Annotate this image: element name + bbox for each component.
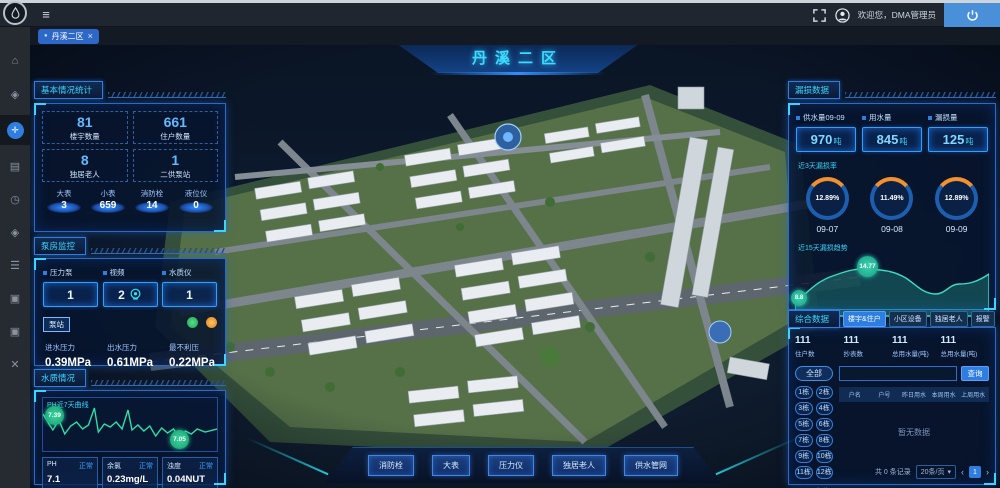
data-panel-title: 综合数据 <box>788 310 840 328</box>
pump-item-label: 水质仪 <box>169 267 192 278</box>
stat-pump-station: 1 二供泵站 <box>133 149 219 182</box>
dashboard-icon: ✛ <box>7 122 24 139</box>
sidebar-nav: ⌂ ◈ ✛ ▤ ◷ ◈ ☰ ▣ ▣ ✕ <box>0 27 30 488</box>
layer-button-pressure-meter[interactable]: 压力仪 <box>488 455 534 476</box>
dp-stat-label: 住户数 <box>795 348 844 358</box>
sidebar-item-dashboard[interactable]: ✛ <box>0 115 30 145</box>
quality-card-label: 余氯 <box>107 461 121 471</box>
leak-stat-unit: 吨 <box>833 136 841 147</box>
ph-end-bubble: 7.05 <box>170 430 189 449</box>
trend-peak-bubble: 14.77 <box>857 256 878 277</box>
tools-icon: ✕ <box>10 358 19 371</box>
water-drop-logo-icon <box>9 7 22 20</box>
sidebar-item-screen[interactable]: ▣ <box>0 319 30 343</box>
quality-card-turbidity: 浊度正常 0.04NUT <box>162 457 218 488</box>
leak-stat-label: 供水量09-09 <box>803 112 845 123</box>
bullet-decor <box>796 116 800 120</box>
leak-trend-chart: 8.8 14.77 <box>795 256 989 318</box>
sidebar-item-tools[interactable]: ✕ <box>0 352 30 376</box>
metric-worst-pressure: 最不利压 0.22MPa <box>169 342 215 369</box>
dp-stat-label: 总用水量(吨) <box>892 348 941 358</box>
building-button-1[interactable]: 1栋 <box>795 386 813 399</box>
dp-stat-households: 111 住户数 <box>795 335 844 358</box>
leak-trend-title: 近15天漏损趋势 <box>789 234 995 253</box>
building-button-2[interactable]: 2栋 <box>816 386 834 399</box>
pump-item-pressure-pump: 压力泵 1 <box>43 267 98 307</box>
tab-buildings-households[interactable]: 楼宇&住户 <box>843 311 886 327</box>
metric-outlet-pressure: 出水压力 0.61MPa <box>107 342 153 369</box>
leak-donut-title: 近3天漏损率 <box>789 152 995 171</box>
metric-value: 0.22MPa <box>169 357 215 369</box>
donut-percent: 12.89% <box>945 195 969 202</box>
quality-panel: PH近7天曲线 7.39 7.05 PH正常 7.1 余氯正常 0.23mg/L… <box>34 390 226 485</box>
leak-stat-value: 125 <box>943 128 965 151</box>
prev-page-button[interactable]: ‹ <box>961 467 964 477</box>
quality-card-label: PH <box>47 461 57 471</box>
donut-percent: 11.49% <box>880 195 903 202</box>
pump-panel: 压力泵 1 视频 2 水质仪 1 泵站 <box>34 258 226 366</box>
leak-stat-unit: 吨 <box>965 136 973 147</box>
quality-card-value: 7.1 <box>47 474 93 485</box>
home-icon: ⌂ <box>12 55 19 67</box>
chart-icon: ▤ <box>10 160 20 173</box>
leak-panel-header: 漏损数据 <box>788 84 996 99</box>
pedestal-hydrant: 消防栓 14 <box>132 188 172 211</box>
station-tag[interactable]: 泵站 <box>43 317 70 332</box>
list-icon: ☰ <box>10 259 20 272</box>
pump-item-value: 1 <box>67 288 74 302</box>
layer-button-big-meter[interactable]: 大表 <box>432 455 470 476</box>
header-hatch-decor <box>845 92 996 98</box>
hamburger-menu-icon[interactable]: ≡ <box>38 7 54 23</box>
pump-item-video: 视频 2 <box>103 267 158 307</box>
tab-alarm[interactable]: 报警 <box>971 311 995 327</box>
metric-label: 最不利压 <box>169 342 215 353</box>
page-size-select[interactable]: 20条/页 ▾ <box>916 465 956 479</box>
pump-panel-header: 泵房监控 <box>34 240 226 255</box>
header-hatch-decor <box>108 92 226 98</box>
banner-glow-line <box>430 72 606 75</box>
building-button-6[interactable]: 6栋 <box>816 418 834 431</box>
leak-stat-loss: 漏损量 125吨 <box>928 112 988 152</box>
leak-stat-value: 970 <box>811 128 833 151</box>
app-logo <box>3 1 27 25</box>
pump-item-label: 压力泵 <box>50 267 73 278</box>
pedestal-small-meter: 小表 659 <box>88 188 128 211</box>
sidebar-item-water[interactable]: ◈ <box>0 82 30 106</box>
tab-community-devices[interactable]: 小区设备 <box>889 311 927 327</box>
leak-donut-2: 11.49% 09-08 <box>870 177 913 234</box>
pedestal-label: 大表 <box>44 188 84 199</box>
quality-panel-title: 水质情况 <box>34 369 86 387</box>
power-icon <box>966 9 979 22</box>
building-button-4[interactable]: 4栋 <box>816 402 834 415</box>
bullet-decor <box>162 271 166 275</box>
avatar-icon[interactable] <box>835 8 850 23</box>
pump-item-label: 视频 <box>110 267 125 278</box>
tab-bar: ● 丹溪二区 × <box>30 27 1000 45</box>
donut-date: 09-07 <box>806 224 849 234</box>
leak-donut-3: 12.89% 09-09 <box>935 177 978 234</box>
pedestal-label: 液位仪 <box>176 188 216 199</box>
bottom-toolbar: 消防栓 大表 压力仪 独居老人 供水管网 <box>325 447 721 483</box>
col-household-id: 户号 <box>871 390 899 399</box>
building-button-3[interactable]: 3栋 <box>795 402 813 415</box>
ph-line-chart: PH近7天曲线 7.39 7.05 <box>42 397 218 452</box>
col-this-week-usage: 本周用水 <box>930 390 958 399</box>
topbar: ≡ 欢迎您，DMA管理员 <box>0 3 1000 27</box>
filter-all-button[interactable]: 全部 <box>795 366 833 381</box>
pedestal-value: 0 <box>176 200 216 211</box>
quality-card-status: 正常 <box>199 461 213 471</box>
online-status-icon[interactable] <box>187 317 198 328</box>
sidebar-item-home[interactable]: ⌂ <box>0 49 30 73</box>
quality-card-value: 0.23mg/L <box>107 474 153 485</box>
building-button-5[interactable]: 5栋 <box>795 418 813 431</box>
metric-label: 出水压力 <box>107 342 153 353</box>
pedestal-label: 小表 <box>88 188 128 199</box>
pagination-bar: 共 0 条记录 20条/页 ▾ ‹ 1 › <box>789 462 995 484</box>
quality-card-status: 正常 <box>79 461 93 471</box>
welcome-text: 欢迎您，DMA管理员 <box>858 9 936 21</box>
leak-panel-title: 漏损数据 <box>788 81 840 99</box>
tab-elderly[interactable]: 独居老人 <box>930 311 968 327</box>
stat-elderly: 8 独居老人 <box>42 149 128 182</box>
sidebar-item-quality[interactable]: ◈ <box>0 220 30 244</box>
donut-percent: 12.89% <box>815 195 839 202</box>
leak-stat-label: 用水量 <box>869 112 892 123</box>
bullet-decor <box>862 116 866 120</box>
leak-panel: 供水量09-09 970吨 用水量 845吨 漏损量 125吨 近3天漏损率 1… <box>788 103 996 310</box>
district-title: 丹溪二区 <box>472 47 564 68</box>
metric-value: 0.61MPa <box>107 357 153 369</box>
trend-start-bubble: 8.8 <box>791 290 807 306</box>
quality-card-chlorine: 余氯正常 0.23mg/L <box>102 457 158 488</box>
stat-label: 楼宇数量 <box>70 131 100 142</box>
warning-status-icon[interactable] <box>206 317 217 328</box>
donut-date: 09-09 <box>935 224 978 234</box>
clock-icon: ◷ <box>10 193 20 206</box>
stat-value: 8 <box>81 152 89 168</box>
table-empty-state: 暂无数据 <box>839 402 989 462</box>
pump-item-quality-meter: 水质仪 1 <box>162 267 217 307</box>
pedestal-value: 14 <box>132 200 172 211</box>
quality-card-ph: PH正常 7.1 <box>42 457 98 488</box>
dp-stat-label: 总用水量(吨) <box>941 348 990 358</box>
leak-stat-usage: 用水量 845吨 <box>862 112 922 152</box>
dp-stat-total-usage-2: 111 总用水量(吨) <box>941 335 990 358</box>
pedestal-big-meter: 大表 3 <box>44 188 84 211</box>
pedestal-level-meter: 液位仪 0 <box>176 188 216 211</box>
bullet-decor <box>43 271 47 275</box>
bullet-decor <box>928 116 932 120</box>
water-quality-icon: ◈ <box>11 226 19 239</box>
stat-value: 81 <box>77 114 93 130</box>
donut-date: 09-08 <box>870 224 913 234</box>
dp-stat-value: 111 <box>795 335 844 346</box>
metric-value: 0.39MPa <box>45 357 91 369</box>
header-hatch-decor <box>91 380 226 386</box>
ph-start-bubble: 7.39 <box>45 406 64 425</box>
map-3d-view[interactable]: 丹溪二区 基本情况统计 81 楼宇数量 661 住户数量 8 独居老人 1 二供… <box>30 27 1000 488</box>
fullscreen-icon[interactable] <box>812 8 827 23</box>
metric-inlet-pressure: 进水压力 0.39MPa <box>45 342 91 369</box>
pump-item-value: 1 <box>186 288 193 302</box>
quality-card-value: 0.04NUT <box>167 474 213 485</box>
chevron-down-icon: ▾ <box>947 468 951 476</box>
col-household-name: 户名 <box>841 390 869 399</box>
col-yesterday-usage: 昨日用水 <box>900 390 928 399</box>
pedestal-label: 消防栓 <box>132 188 172 199</box>
dp-stat-value: 111 <box>892 335 941 346</box>
tab-close-icon[interactable]: × <box>88 31 93 41</box>
leak-stat-supply: 供水量09-09 970吨 <box>796 112 856 152</box>
dp-stat-meter-readings: 111 抄表数 <box>844 335 893 358</box>
quality-card-status: 正常 <box>139 461 153 471</box>
search-input[interactable] <box>839 366 957 381</box>
tab-active-dot: ● <box>44 33 48 39</box>
stats-panel: 81 楼宇数量 661 住户数量 8 独居老人 1 二供泵站 大表 3 <box>34 103 226 232</box>
stat-households: 661 住户数量 <box>133 111 219 144</box>
pedestal-value: 3 <box>44 200 84 211</box>
sidebar-item-chart[interactable]: ▤ <box>0 154 30 178</box>
layer-button-elderly[interactable]: 独居老人 <box>552 455 606 476</box>
logout-power-button[interactable] <box>944 3 1000 27</box>
leak-donut-1: 12.89% 09-07 <box>806 177 849 234</box>
leak-stat-value: 845 <box>877 128 899 151</box>
sidebar-item-list[interactable]: ☰ <box>0 253 30 277</box>
camera-icon[interactable] <box>129 288 142 301</box>
dp-stat-label: 抄表数 <box>844 348 893 358</box>
window-scrollbar-strip <box>0 0 1000 3</box>
pump-item-value: 2 <box>118 288 125 302</box>
building-button-8[interactable]: 8栋 <box>816 434 834 447</box>
layer-button-water-network[interactable]: 供水管网 <box>624 455 678 476</box>
layer-button-hydrant[interactable]: 消防栓 <box>368 455 414 476</box>
monitor-icon: ▣ <box>10 292 20 305</box>
tab-label: 丹溪二区 <box>52 31 84 42</box>
dp-stat-value: 111 <box>941 335 990 346</box>
col-last-week-usage: 上周用水 <box>959 390 987 399</box>
water-drop-icon: ◈ <box>11 88 19 101</box>
metric-label: 进水压力 <box>45 342 91 353</box>
leak-stat-unit: 吨 <box>899 136 907 147</box>
stats-panel-header: 基本情况统计 <box>34 84 226 99</box>
tab-danxi-district-2[interactable]: ● 丹溪二区 × <box>38 29 99 44</box>
leak-stat-label: 漏损量 <box>935 112 958 123</box>
sidebar-item-history[interactable]: ◷ <box>0 187 30 211</box>
sidebar-item-monitor[interactable]: ▣ <box>0 286 30 310</box>
stat-label: 住户数量 <box>160 131 190 142</box>
stat-buildings: 81 楼宇数量 <box>42 111 128 144</box>
stat-value: 1 <box>171 152 179 168</box>
header-hatch-decor <box>91 248 226 254</box>
data-panel: 111 住户数 111 抄表数 111 总用水量(吨) 111 总用水量(吨) … <box>788 327 996 485</box>
stats-panel-title: 基本情况统计 <box>34 81 103 99</box>
stat-label: 独居老人 <box>70 169 100 180</box>
next-page-button[interactable]: › <box>986 467 989 477</box>
current-page-button[interactable]: 1 <box>969 466 981 478</box>
pump-panel-title: 泵房监控 <box>34 237 86 255</box>
pedestal-value: 659 <box>88 200 128 211</box>
stat-label: 二供泵站 <box>160 169 190 180</box>
table-header-row: 户名 户号 昨日用水 本周用水 上周用水 <box>839 387 989 402</box>
screen-icon: ▣ <box>10 325 20 338</box>
leak-trend-area <box>795 256 989 318</box>
quality-panel-header: 水质情况 <box>34 372 226 387</box>
dp-stat-total-usage-1: 111 总用水量(吨) <box>892 335 941 358</box>
record-count: 共 0 条记录 <box>875 467 911 477</box>
dp-stat-value: 111 <box>844 335 893 346</box>
bullet-decor <box>103 271 107 275</box>
stat-value: 661 <box>164 114 187 130</box>
data-panel-header: 综合数据 楼宇&住户 小区设备 独居老人 报警 <box>788 310 996 328</box>
search-button[interactable]: 查询 <box>961 366 989 381</box>
quality-card-label: 浊度 <box>167 461 181 471</box>
page-size-value: 20条/页 <box>921 467 945 477</box>
